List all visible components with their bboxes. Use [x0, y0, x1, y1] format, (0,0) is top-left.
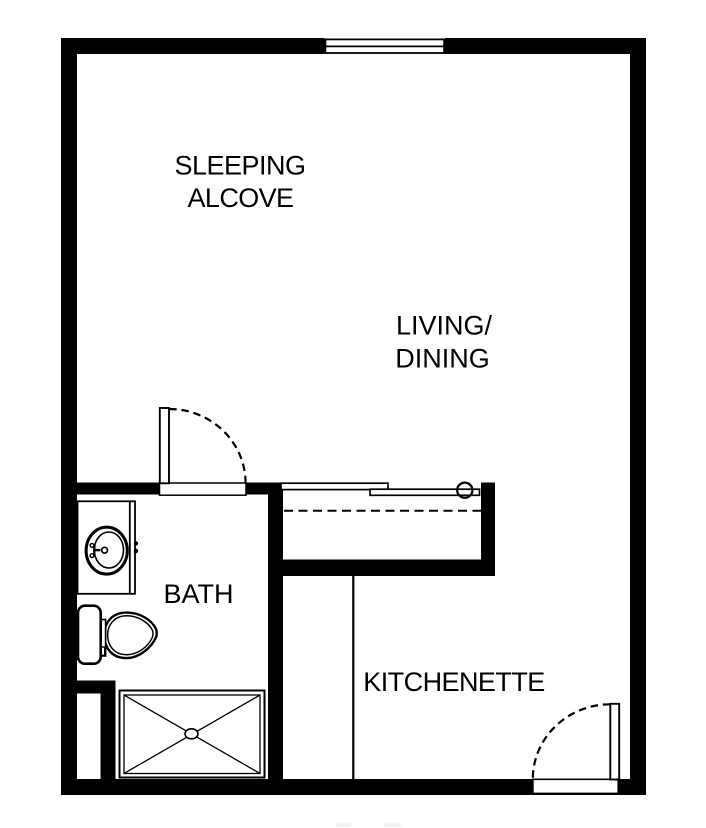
- svg-text:BATH: BATH: [163, 579, 233, 609]
- svg-text:ALCOVE: ALCOVE: [188, 183, 294, 213]
- svg-text:KITCHENETTE: KITCHENETTE: [363, 667, 544, 697]
- svg-text:SLEEPING: SLEEPING: [174, 151, 305, 181]
- svg-text:DINING: DINING: [395, 344, 490, 374]
- svg-text:LIVING/: LIVING/: [396, 311, 493, 341]
